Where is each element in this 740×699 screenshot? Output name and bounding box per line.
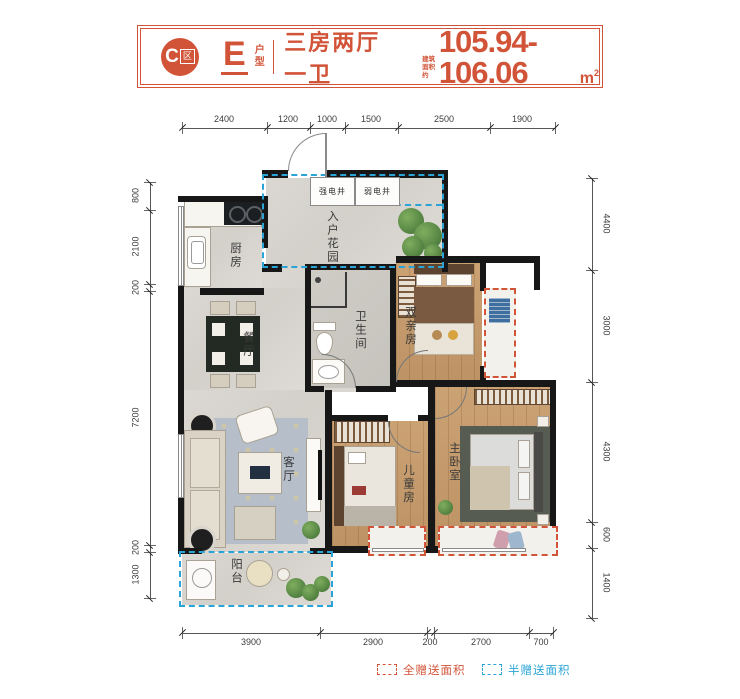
ac-unit	[489, 298, 510, 323]
dim-tick	[182, 627, 183, 639]
shower-head	[315, 277, 321, 283]
entry-garden-label: 入户花园	[324, 210, 340, 264]
dim-tick	[586, 618, 598, 619]
weak-electric-shaft: 弱电井	[355, 177, 400, 206]
stove-burner	[229, 206, 246, 223]
window	[372, 548, 424, 552]
dim-label-right: 4400	[601, 204, 612, 244]
dim-line-bottom	[182, 633, 554, 634]
weak-electric-shaft-label: 弱电井	[364, 186, 391, 197]
teddy-bear	[448, 330, 458, 340]
dim-label-top: 2400	[204, 114, 244, 125]
unit-type-word: 户 型	[255, 45, 265, 68]
unit-type-word-1: 户	[255, 45, 265, 57]
dining-chair	[210, 301, 230, 315]
kitchen-sink-basin	[191, 241, 204, 264]
dim-label-bottom: 2700	[461, 637, 501, 648]
dim-tick	[144, 552, 156, 553]
sofa-cushion	[190, 438, 220, 488]
strong-electric-shaft: 强电井	[310, 177, 355, 206]
kids-pillow	[348, 452, 366, 464]
kids-red-pillow	[352, 486, 366, 495]
wall	[480, 263, 486, 291]
dim-tick	[144, 291, 156, 292]
zone-letter: C	[165, 47, 179, 66]
layout-description: 三房两厅一卫	[284, 25, 396, 89]
wall	[534, 256, 540, 290]
legend-half-gift-swatch	[482, 664, 502, 675]
master-closet	[474, 389, 552, 405]
dim-tick	[398, 122, 399, 134]
dim-tick	[144, 210, 156, 211]
nightstand	[537, 416, 549, 427]
window	[442, 548, 526, 552]
wall	[390, 264, 396, 386]
dim-tick	[320, 627, 321, 639]
dim-label-top: 1000	[307, 114, 347, 125]
zone-badge: C 区	[161, 38, 199, 76]
parents-room-label: 双亲房	[402, 306, 418, 347]
dim-label-top: 2500	[424, 114, 464, 125]
wall	[428, 387, 435, 548]
dim-tick	[144, 182, 156, 183]
dim-tick	[586, 178, 598, 179]
parents-pillow	[416, 274, 442, 286]
dim-label-right: 4300	[601, 432, 612, 472]
dim-tick	[586, 522, 598, 523]
kitchen-label: 厨房	[227, 242, 243, 269]
plant	[302, 521, 320, 539]
dim-label-left: 800	[131, 176, 142, 216]
legend-full-gift-label: 全赠送面积	[403, 662, 466, 678]
dim-label-left: 7200	[131, 398, 142, 438]
dim-label-bottom: 200	[410, 637, 450, 648]
dining-chair	[236, 374, 256, 388]
nightstand	[537, 514, 549, 525]
kids-bed-headboard	[334, 446, 344, 526]
ottoman	[234, 506, 276, 540]
wall	[305, 264, 311, 392]
dim-tick	[586, 548, 598, 549]
dim-label-left: 2100	[131, 227, 142, 267]
legend-half-gift-label: 半赠送面积	[508, 662, 571, 678]
toilet-tank	[313, 322, 336, 331]
dim-label-bottom: 3900	[231, 637, 271, 648]
dim-tick	[144, 284, 156, 285]
dining-label: 餐厅	[240, 331, 256, 358]
dining-chair	[236, 301, 256, 315]
wall	[332, 546, 370, 553]
master-pillow	[518, 472, 530, 500]
strong-electric-shaft-label: 强电井	[319, 186, 346, 197]
unit-type-word-2: 型	[255, 57, 265, 69]
dim-label-right: 1400	[601, 563, 612, 603]
living-room-label: 客厅	[280, 456, 296, 483]
dim-line-right	[592, 178, 593, 618]
dim-label-left: 1300	[131, 555, 142, 595]
bathroom-label: 卫生间	[352, 310, 368, 351]
kids-closet	[334, 421, 390, 443]
parents-bed-duvet	[414, 287, 474, 323]
master-room-label: 主卧室	[446, 442, 462, 483]
dim-label-left: 200	[131, 268, 142, 308]
dim-tick	[555, 122, 556, 134]
dining-plate	[212, 352, 225, 365]
area-note: 建筑 面积约	[422, 56, 437, 80]
area-unit: m	[580, 71, 594, 87]
entry-door-arc	[288, 133, 326, 171]
dim-tick	[490, 122, 491, 134]
master-bed-headboard	[534, 432, 543, 512]
dim-label-bottom: 700	[521, 637, 561, 648]
area-group: 建筑 面积约 105.94-106.06 m 2	[422, 26, 599, 88]
dim-tick	[144, 598, 156, 599]
wall	[200, 288, 264, 295]
shower-glass	[311, 306, 347, 308]
entry-door-leaf	[325, 133, 327, 177]
wall	[178, 196, 268, 202]
dim-label-top: 1500	[351, 114, 391, 125]
dim-label-right: 600	[601, 515, 612, 555]
header-divider	[273, 40, 275, 74]
dim-line-left	[150, 182, 151, 598]
wall	[178, 498, 184, 554]
stove-burner	[246, 206, 263, 223]
balcony-half-gift-area	[179, 551, 333, 607]
dining-chair	[210, 374, 230, 388]
coffee-table-decor	[250, 466, 270, 479]
kids-blanket	[344, 506, 396, 526]
legend-full-gift-swatch	[377, 664, 397, 675]
dim-label-top: 1900	[502, 114, 542, 125]
dining-plate	[212, 323, 225, 336]
dim-label-top: 1200	[268, 114, 308, 125]
dim-label-right: 3000	[601, 306, 612, 346]
parents-pillow	[446, 274, 472, 286]
area-exponent: 2	[594, 69, 599, 78]
floorplan-page: C 区 E 户 型 三房两厅一卫 建筑 面积约 105.94-106.06 m …	[0, 0, 740, 699]
master-pillow	[518, 440, 530, 468]
wall	[356, 386, 396, 392]
teddy-bear	[432, 330, 442, 340]
dim-line-top	[182, 128, 556, 129]
shower-glass	[345, 272, 347, 308]
dim-label-bottom: 2900	[353, 637, 393, 648]
tv	[318, 450, 322, 500]
dim-tick	[586, 382, 598, 383]
unit-type-letter: E	[221, 38, 248, 74]
master-blanket	[470, 466, 510, 510]
wall	[332, 415, 388, 421]
wall	[178, 286, 184, 434]
kids-room-label: 儿童房	[400, 464, 416, 505]
dim-tick	[144, 545, 156, 546]
window	[178, 206, 184, 286]
plant	[438, 500, 453, 515]
dim-tick	[182, 122, 183, 134]
wall	[325, 390, 332, 550]
header-banner: C 区 E 户 型 三房两厅一卫 建筑 面积约 105.94-106.06 m …	[140, 28, 600, 85]
dim-tick	[586, 270, 598, 271]
area-note-2: 面积约	[422, 64, 437, 80]
balcony-label: 阳台	[228, 558, 244, 585]
window	[178, 434, 184, 498]
area-value: 105.94-106.06	[439, 26, 580, 88]
zone-char: 区	[180, 49, 195, 64]
